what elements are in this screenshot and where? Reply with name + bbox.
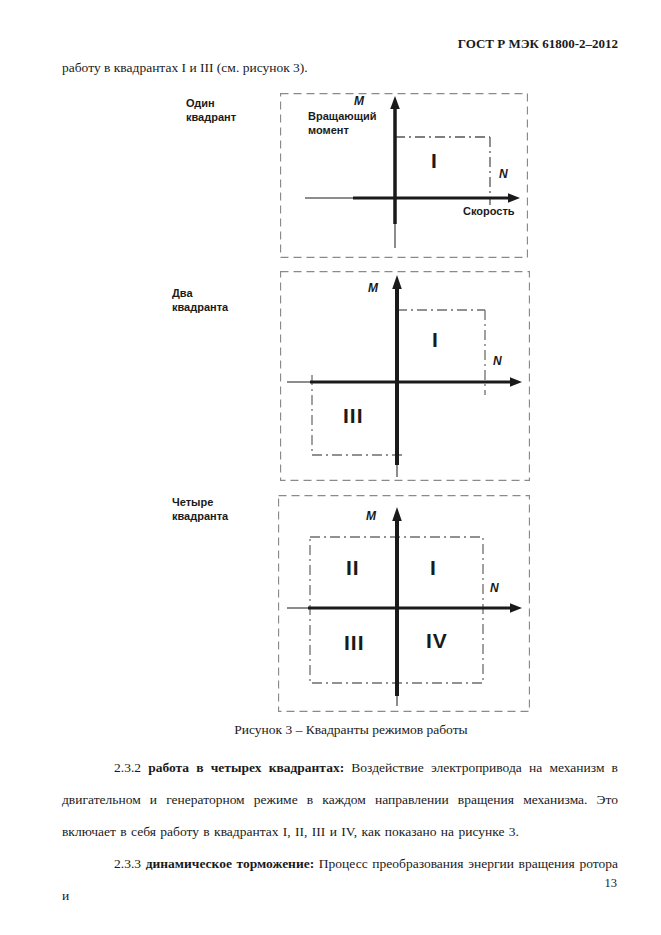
diagram3-quadrant4-label: IV (426, 629, 448, 653)
diagram2-canvas (280, 271, 530, 481)
diagram3-m-axis-label: M (366, 509, 376, 523)
diagram2-quadrant3-label: III (343, 404, 364, 428)
diagram2-m-axis-label: M (368, 281, 378, 295)
diagram1-m-axis-label: M (354, 94, 364, 108)
diagram1-speed-label: Скорость (463, 205, 515, 219)
diagram2-right-arrowhead-icon (510, 377, 522, 386)
diagram3-side-label: Четыре квадранта (172, 496, 244, 523)
diagram3-quadrant1-label: I (430, 556, 437, 580)
diagram2-side-label: Два квадранта (172, 287, 238, 314)
paragraph-2-3-3: 2.3.3 динамическое торможение: Процесс п… (62, 848, 618, 912)
diagram2-quadrant1-label: I (432, 328, 439, 352)
diagram3-quadrant3-label: III (344, 631, 365, 655)
diagram3-quadrant2-label: II (346, 556, 360, 580)
diagram-one-quadrant: M Вращающий момент I N Скорость (280, 93, 528, 258)
page-number: 13 (605, 876, 618, 891)
diagram2-up-arrowhead-icon (392, 275, 402, 289)
document-title: ГОСТ Р МЭК 61800-2–2012 (458, 36, 618, 52)
defined-term: работа в четырех квадрантах: (148, 760, 344, 775)
diagram1-quadrant1-dashdot-outline (395, 137, 490, 205)
diagram1-quadrant1-label: I (431, 149, 438, 173)
diagram-two-quadrants: M I N III (280, 271, 530, 481)
diagram2-n-axis-label: N (493, 354, 502, 368)
diagram3-canvas (278, 495, 530, 712)
paragraph-2-3-2: 2.3.2 работа в четырех квадрантах: Возде… (62, 752, 618, 848)
diagram3-dashed-frame (279, 496, 530, 712)
diagram1-side-label: Один квадрант (186, 97, 248, 124)
diagram3-n-axis-label: N (490, 581, 499, 595)
diagram2-dashed-frame (281, 272, 530, 481)
figure-caption: Рисунок 3 – Квадранты режимов работы (62, 722, 618, 738)
diagram1-up-arrowhead-icon (390, 96, 400, 109)
document-page: ГОСТ Р МЭК 61800-2–2012 работу в квадран… (0, 0, 661, 935)
diagram1-torque-label: Вращающий момент (308, 110, 380, 137)
diagram1-n-axis-label: N (499, 167, 508, 181)
diagram-four-quadrants: M II I N III IV (278, 495, 530, 712)
diagram3-up-arrowhead-icon (392, 507, 402, 521)
body-text: 2.3.2 работа в четырех квадрантах: Возде… (62, 752, 618, 912)
diagram1-right-arrowhead-icon (508, 193, 520, 202)
diagram3-right-arrowhead-icon (510, 603, 522, 612)
intro-text: работу в квадрантах I и III (см. рисунок… (62, 60, 308, 76)
clause-number: 2.3.2 (114, 760, 141, 775)
clause-number: 2.3.3 (114, 856, 141, 871)
defined-term: динамическое торможение: (146, 856, 314, 871)
